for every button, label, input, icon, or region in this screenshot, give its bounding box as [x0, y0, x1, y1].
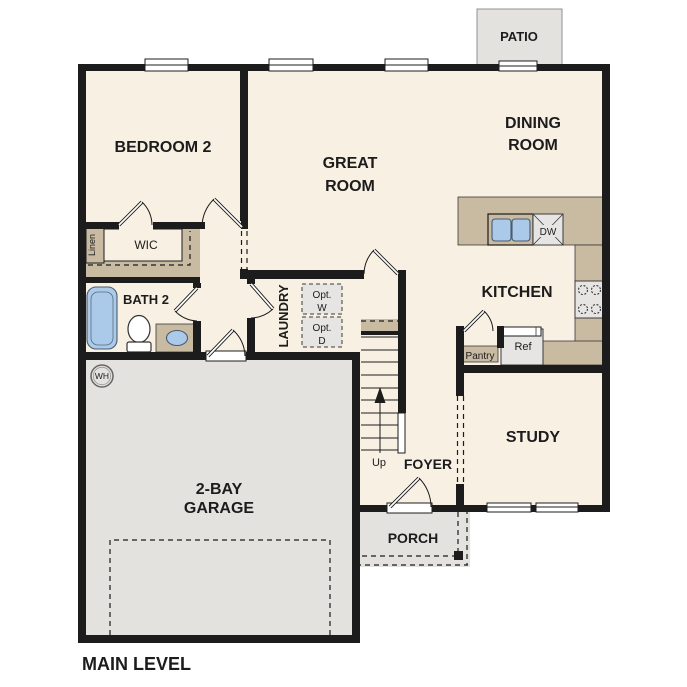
- wall-hall-stub: [240, 269, 248, 279]
- sink-basin-right: [512, 219, 530, 241]
- toilet-tank: [127, 342, 151, 352]
- wall-exterior-right: [602, 64, 610, 512]
- burner-icon: [592, 286, 601, 295]
- wic-label: WIC: [134, 238, 158, 252]
- plan-title: MAIN LEVEL: [82, 654, 191, 674]
- garage-label-1: 2-BAY: [196, 481, 243, 498]
- floor-plan-page: PATIO DINING ROOM GREAT ROOM BEDROOM 2 K…: [0, 0, 687, 687]
- pantry-label: Pantry: [466, 351, 495, 362]
- sink-basin-left: [492, 219, 511, 241]
- kitchen-bottom-counter: [543, 341, 603, 365]
- garage-slab: [86, 360, 352, 637]
- wall-study-west-lower: [456, 484, 464, 505]
- dishwasher-label: DW: [540, 227, 557, 238]
- bedroom2-label: BEDROOM 2: [115, 139, 212, 156]
- linen-label: Linen: [87, 234, 97, 256]
- laundry-label: LAUNDRY: [276, 284, 291, 347]
- dining-room-label-1: DINING: [505, 115, 561, 132]
- patio-label: PATIO: [500, 29, 538, 44]
- dining-room-label-2: ROOM: [508, 137, 558, 154]
- kitchen-label: KITCHEN: [481, 284, 552, 301]
- water-heater-label: WH: [95, 371, 109, 381]
- floor-zones: [82, 9, 606, 637]
- refrigerator-label: Ref: [514, 341, 532, 353]
- stairs-up-label: Up: [372, 457, 386, 469]
- wall-pantry-west: [456, 326, 464, 365]
- burner-icon: [579, 305, 588, 314]
- refrigerator-door: [503, 327, 541, 336]
- bath2-label: BATH 2: [123, 292, 169, 307]
- wall-kitchen-study: [456, 365, 610, 373]
- burner-icon: [579, 286, 588, 295]
- stair-handrail: [398, 413, 405, 453]
- opt-washer-label-1: Opt.: [313, 290, 332, 301]
- burner-icon: [592, 305, 601, 314]
- wall-study-west-upper: [456, 373, 464, 396]
- porch-label: PORCH: [388, 530, 439, 546]
- wall-garage-east: [352, 352, 360, 643]
- foyer-label: FOYER: [404, 456, 452, 472]
- vanity-sink-icon: [167, 331, 188, 346]
- stair-landing-edge: [361, 331, 398, 335]
- floor-plan-svg: PATIO DINING ROOM GREAT ROOM BEDROOM 2 K…: [0, 0, 687, 687]
- wall-bath-top: [78, 277, 200, 283]
- opt-dryer-label-2: D: [318, 336, 325, 347]
- wall-garage-bottom: [78, 635, 360, 643]
- great-room-label-1: GREAT: [323, 155, 378, 172]
- wall-laundry-top: [247, 270, 364, 279]
- wall-stair-east: [398, 270, 406, 413]
- toilet-icon: [128, 316, 150, 343]
- wall-bedroom-divider: [240, 71, 248, 229]
- wall-pantry-east: [497, 326, 504, 348]
- porch-post: [454, 551, 463, 560]
- opt-washer-label-2: W: [317, 303, 327, 314]
- opt-dryer-label-1: Opt.: [313, 323, 332, 334]
- study-label: STUDY: [506, 429, 561, 446]
- great-room-label-2: ROOM: [325, 178, 375, 195]
- garage-label-2: GARAGE: [184, 500, 255, 517]
